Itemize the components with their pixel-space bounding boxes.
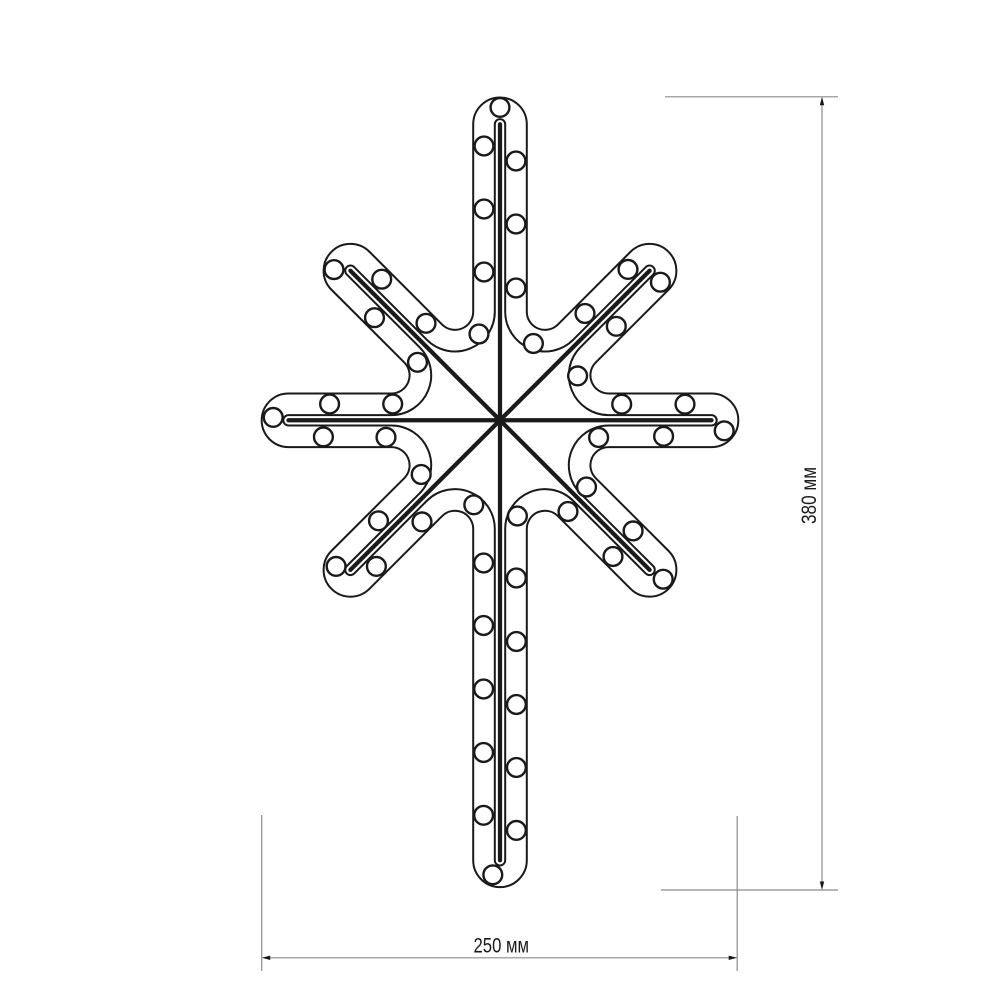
svg-text:250 мм: 250 мм	[474, 934, 530, 958]
svg-text:380 мм: 380 мм	[797, 467, 821, 524]
